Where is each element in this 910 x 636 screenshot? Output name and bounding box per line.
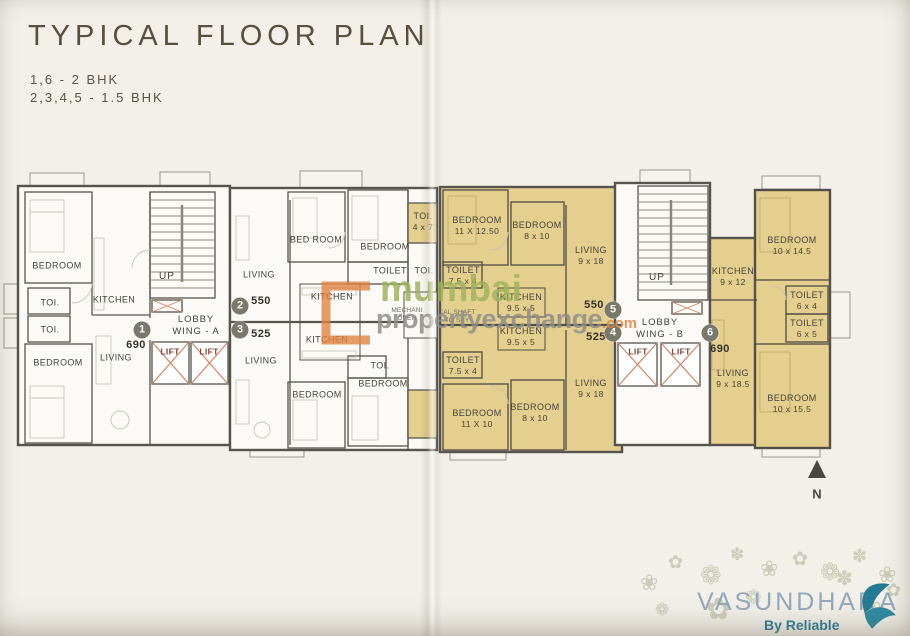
unit1-toi2-label: TOI. (41, 324, 60, 335)
unit4-bedroom2-name: BEDROOM (510, 402, 559, 413)
unit5-bedroom2-name: BEDROOM (512, 220, 561, 231)
mech-shaft-right-line2: TO SKY (438, 317, 475, 325)
bhk-note-1: 1,6 - 2 BHK (30, 72, 119, 87)
wing-b-up-label: UP (649, 272, 665, 285)
unit5-kitchen-dim: 9.5 x 5 (500, 303, 542, 314)
unit5-toilet-dim: 7.5 x 4 (446, 276, 480, 287)
unit3-living-label: LIVING (245, 355, 277, 366)
unit1-bedroom-bottom-label: BEDROOM (33, 357, 82, 368)
unit3-area-value: 525 (251, 328, 271, 340)
unit4-toilet-label: TOILET 7.5 x 4 (446, 355, 480, 377)
wing-b-lift1-label: LIFT (628, 347, 647, 358)
unit4-bedroom2-dim: 8 x 10 (510, 413, 559, 424)
unit3-bedroom-right-label: BEDROOM (358, 378, 407, 389)
brand-tagline: By Reliable (764, 617, 839, 633)
unit5-number-badge: 5 (605, 302, 622, 319)
unit2-number-badge: 2 (232, 298, 249, 315)
unit1-number-badge: 1 (134, 322, 151, 339)
unit4-number-badge: 4 (605, 325, 622, 342)
unit5-bedroom2-label: BEDROOM 8 x 10 (512, 220, 561, 242)
unit1-kitchen-label: KITCHEN (93, 294, 135, 305)
unit6-kitchen-dim: 9 x 12 (712, 277, 754, 288)
mech-shaft-right-label: CAL SHAFT TO SKY (438, 309, 475, 325)
shaft-toi-mid-label: TOI. (415, 265, 434, 276)
unit4-bedroom1-label: BEDROOM 11 X 10 (452, 408, 501, 430)
unit6-toilet2-label: TOILET 6 x 5 (790, 318, 824, 340)
wing-b-lobby-line1: LOBBY (636, 317, 684, 329)
wing-b-lift2-label: LIFT (671, 347, 690, 358)
mech-shaft-left-label: MECHANI OPEN (391, 307, 422, 323)
bhk-note-2: 2,3,4,5 - 1.5 BHK (30, 90, 164, 105)
unit4-area-value: 525 (586, 331, 606, 343)
unit6-number-badge: 6 (702, 325, 719, 342)
unit2-bedroom2-label: BEDROOM (360, 241, 409, 252)
page-title: TYPICAL FLOOR PLAN (28, 20, 430, 53)
mech-shaft-right-line1: CAL SHAFT (438, 309, 475, 317)
unit2-bedroom1-label: BED ROOM (290, 234, 342, 245)
north-label: N (812, 487, 821, 502)
shaft-toi-top-name: TOI. (413, 211, 433, 222)
unit6-bedroom2-dim: 10 x 15.5 (767, 404, 816, 415)
unit6-toilet1-dim: 6 x 4 (790, 301, 824, 312)
north-arrow-icon (808, 460, 826, 478)
unit5-bedroom1-dim: 11 X 12.50 (452, 226, 501, 237)
wing-b-lobby-line2: WING - B (636, 329, 684, 341)
mech-shaft-left-line2: OPEN (391, 315, 422, 323)
unit4-bedroom1-dim: 11 X 10 (452, 419, 501, 430)
unit3-bedroom-bottom-label: BEDROOM (292, 389, 341, 400)
unit6-bedroom1-label: BEDROOM 10 x 14.5 (767, 235, 816, 257)
unit2-area-value: 550 (251, 295, 271, 307)
unit6-living-dim: 9 x 18.5 (716, 379, 749, 390)
unit1-bedroom-top-label: BEDROOM (32, 260, 81, 271)
wing-a-up-label: UP (159, 271, 175, 284)
unit4-living-dim: 9 x 18 (575, 389, 607, 400)
mech-shaft-left-line1: MECHANI (391, 307, 422, 315)
unit4-toilet-dim: 7.5 x 4 (446, 366, 480, 377)
unit6-bedroom1-name: BEDROOM (767, 235, 816, 246)
unit4-bedroom2-label: BEDROOM 8 x 10 (510, 402, 559, 424)
unit6-kitchen-name: KITCHEN (712, 266, 754, 277)
unit6-living-name: LIVING (716, 368, 749, 379)
unit3-toi-label: TOI. (371, 360, 390, 371)
unit5-living-label: LIVING 9 x 18 (575, 245, 607, 267)
unit1-toi1-label: TOI. (41, 297, 60, 308)
unit5-bedroom1-label: BEDROOM 11 X 12.50 (452, 215, 501, 237)
unit6-toilet1-name: TOILET (790, 290, 824, 301)
unit2-living-label: LIVING (243, 269, 275, 280)
unit4-living-name: LIVING (575, 378, 607, 389)
unit1-living-label: LIVING (100, 352, 132, 363)
unit5-kitchen-name: KITCHEN (500, 292, 542, 303)
scanned-floor-plan-page: TYPICAL FLOOR PLAN 1,6 - 2 BHK 2,3,4,5 -… (0, 0, 910, 636)
unit4-toilet-name: TOILET (446, 355, 480, 366)
wing-a-lobby-line2: WING - A (172, 326, 219, 338)
unit6-area-value: 690 (710, 343, 730, 355)
unit4-kitchen-name: KITCHEN (500, 326, 542, 337)
unit4-kitchen-label: KITCHEN 9.5 x 5 (500, 326, 542, 348)
unit5-living-dim: 9 x 18 (575, 256, 607, 267)
unit6-toilet1-label: TOILET 6 x 4 (790, 290, 824, 312)
shaft-toi-top-dim: 4 x 7 (413, 222, 433, 233)
unit2-kitchen-label: KITCHEN (311, 291, 353, 302)
unit5-toilet-name: TOILET (446, 265, 480, 276)
unit6-toilet2-dim: 6 x 5 (790, 329, 824, 340)
wing-a-lobby-label: LOBBY WING - A (172, 314, 219, 338)
unit6-toilet2-name: TOILET (790, 318, 824, 329)
unit4-living-label: LIVING 9 x 18 (575, 378, 607, 400)
wing-a-lobby-line1: LOBBY (172, 314, 219, 326)
shaft-toi-top-label: TOI. 4 x 7 (413, 211, 433, 233)
unit4-kitchen-dim: 9.5 x 5 (500, 337, 542, 348)
unit4-bedroom1-name: BEDROOM (452, 408, 501, 419)
unit6-bedroom2-label: BEDROOM 10 x 15.5 (767, 393, 816, 415)
unit3-number-badge: 3 (232, 322, 249, 339)
brand-bird-icon (838, 578, 900, 634)
unit5-bedroom2-dim: 8 x 10 (512, 231, 561, 242)
unit3-kitchen-label: KITCHEN (306, 334, 348, 345)
unit5-bedroom1-name: BEDROOM (452, 215, 501, 226)
unit1-area-value: 690 (126, 339, 146, 351)
wing-a-lift2-label: LIFT (199, 347, 218, 358)
unit6-kitchen-label: KITCHEN 9 x 12 (712, 266, 754, 288)
unit2-toilet-label: TOILET (373, 265, 407, 276)
unit5-kitchen-label: KITCHEN 9.5 x 5 (500, 292, 542, 314)
unit5-toilet-label: TOILET 7.5 x 4 (446, 265, 480, 287)
unit5-living-name: LIVING (575, 245, 607, 256)
unit6-bedroom1-dim: 10 x 14.5 (767, 246, 816, 257)
wing-a-lift1-label: LIFT (160, 347, 179, 358)
unit6-living-label: LIVING 9 x 18.5 (716, 368, 749, 390)
unit5-area-value: 550 (584, 299, 604, 311)
wing-b-lobby-label: LOBBY WING - B (636, 317, 684, 341)
unit6-bedroom2-name: BEDROOM (767, 393, 816, 404)
